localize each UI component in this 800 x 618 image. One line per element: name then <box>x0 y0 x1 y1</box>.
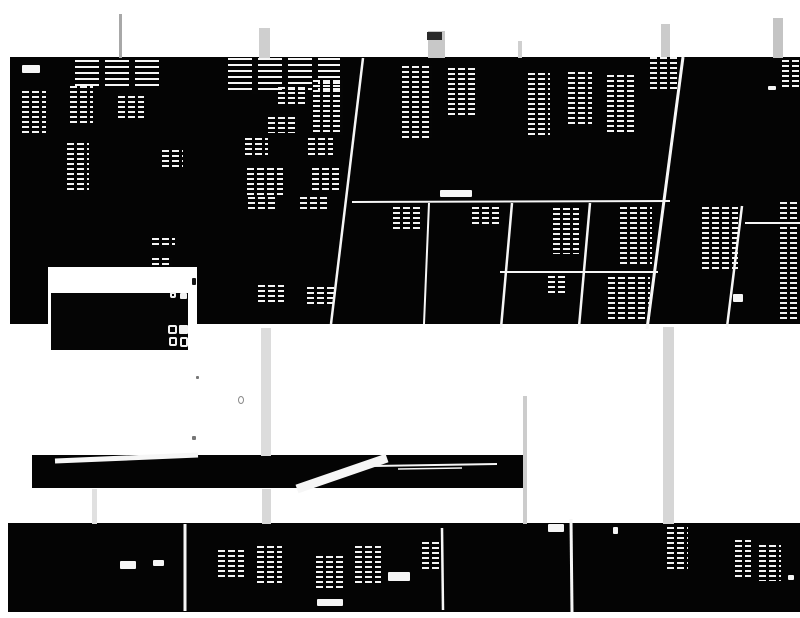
text-fragment <box>788 575 794 580</box>
text-fragment <box>22 91 46 133</box>
middle-scan-bar <box>32 455 525 488</box>
text-fragment <box>162 150 183 170</box>
text-fragment <box>448 68 477 118</box>
text-fragment <box>782 60 800 88</box>
text-fragment <box>402 66 432 138</box>
fold-streak <box>92 489 97 524</box>
text-fragment <box>268 117 298 133</box>
text-fragment <box>120 561 136 569</box>
text-fragment <box>313 80 343 135</box>
box-glyph <box>180 293 187 299</box>
text-fragment <box>278 87 308 104</box>
ink-speck <box>192 436 196 440</box>
ink-ring <box>238 396 244 404</box>
fold-streak <box>663 327 674 524</box>
text-fragment <box>422 542 440 572</box>
text-fragment <box>307 287 334 307</box>
text-fragment <box>316 556 344 589</box>
text-fragment <box>780 202 800 322</box>
text-fragment <box>218 550 244 578</box>
ink-speck <box>196 376 199 379</box>
text-fragment <box>620 207 652 267</box>
text-fragment <box>399 574 407 581</box>
fold-streak <box>119 14 122 58</box>
text-fragment <box>548 524 564 532</box>
box-glyph <box>170 292 176 298</box>
ink-speck <box>192 278 196 285</box>
text-fragment <box>733 294 743 302</box>
text-fragment <box>613 527 618 534</box>
text-fragment <box>702 207 738 269</box>
degraded-scan-page <box>0 0 800 618</box>
fold-streak <box>261 328 271 456</box>
text-fragment <box>548 276 566 296</box>
text-fragment <box>152 258 172 267</box>
text-fragment <box>735 540 751 580</box>
fold-streak <box>773 18 783 58</box>
fold-streak <box>262 489 271 524</box>
overlay-box-inner <box>51 293 188 350</box>
text-fragment <box>258 285 284 305</box>
fold-streak <box>661 24 670 58</box>
text-fragment <box>667 527 688 571</box>
text-fragment <box>440 190 472 197</box>
fold-streak <box>523 396 527 524</box>
fold-streak <box>259 28 270 58</box>
text-fragment <box>528 73 550 135</box>
text-fragment <box>472 207 500 227</box>
text-fragment <box>300 197 328 211</box>
text-fragment <box>768 86 776 90</box>
text-fragment <box>759 545 781 581</box>
text-fragment <box>152 238 175 248</box>
fold-streak <box>518 41 522 58</box>
text-fragment <box>317 599 343 606</box>
text-fragment <box>553 208 579 254</box>
fold-streak-cap <box>427 32 442 40</box>
text-fragment <box>153 560 164 566</box>
box-glyph <box>169 337 177 346</box>
text-fragment <box>70 86 93 124</box>
text-fragment <box>568 72 592 124</box>
text-fragment <box>355 546 381 584</box>
text-fragment <box>67 143 89 193</box>
text-fragment <box>257 546 282 586</box>
text-fragment <box>118 96 144 121</box>
text-fragment <box>650 57 680 92</box>
box-glyph <box>179 325 188 334</box>
text-fragment <box>312 168 342 193</box>
text-fragment <box>608 277 650 322</box>
box-glyph <box>180 337 188 347</box>
text-fragment <box>247 168 283 195</box>
text-fragment <box>248 197 278 211</box>
text-fragment <box>393 207 423 231</box>
box-glyph <box>168 325 177 334</box>
text-fragment <box>607 75 635 133</box>
text-fragment <box>22 65 40 73</box>
text-fragment <box>308 138 333 155</box>
text-fragment <box>245 138 268 156</box>
